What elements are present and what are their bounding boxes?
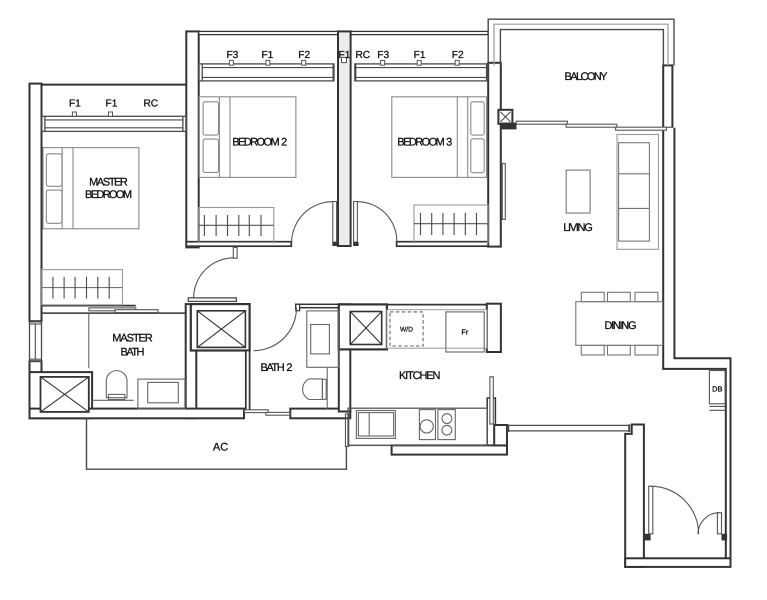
svg-text:AC: AC: [213, 441, 228, 453]
svg-text:F1: F1: [69, 99, 81, 110]
svg-text:F1: F1: [414, 50, 426, 61]
svg-text:BALCONY: BALCONY: [565, 71, 609, 83]
svg-text:RC: RC: [143, 99, 158, 110]
svg-text:F1: F1: [261, 50, 273, 61]
svg-text:BEDROOM 2: BEDROOM 2: [232, 136, 287, 148]
svg-text:F1: F1: [339, 50, 351, 61]
svg-text:KITCHEN: KITCHEN: [399, 370, 441, 382]
svg-text:F2: F2: [452, 50, 464, 61]
svg-text:DINING: DINING: [605, 320, 637, 332]
svg-text:BATH 2: BATH 2: [261, 362, 293, 374]
svg-text:MASTER: MASTER: [112, 332, 153, 344]
svg-text:RC: RC: [355, 50, 370, 61]
svg-text:F3: F3: [226, 50, 238, 61]
svg-text:MASTER: MASTER: [89, 176, 128, 188]
svg-text:BEDROOM 3: BEDROOM 3: [397, 136, 452, 148]
svg-text:F2: F2: [298, 50, 310, 61]
svg-text:W/D: W/D: [400, 327, 413, 334]
svg-text:DB: DB: [712, 385, 722, 394]
svg-text:BEDROOM: BEDROOM: [85, 189, 132, 201]
svg-text:Fr: Fr: [461, 328, 469, 337]
svg-text:F1: F1: [106, 99, 118, 110]
svg-text:BATH: BATH: [121, 347, 145, 359]
svg-text:LIVING: LIVING: [563, 222, 593, 234]
svg-text:F3: F3: [377, 50, 389, 61]
